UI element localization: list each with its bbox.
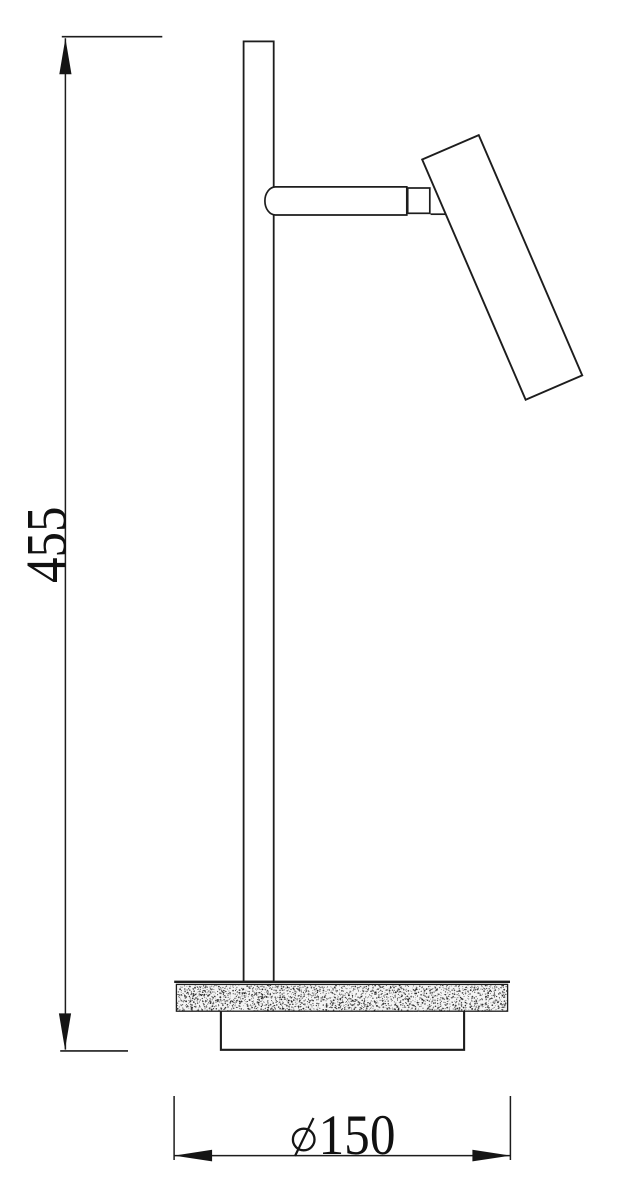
svg-text:150: 150 <box>319 1104 396 1167</box>
svg-text:455: 455 <box>15 506 78 583</box>
